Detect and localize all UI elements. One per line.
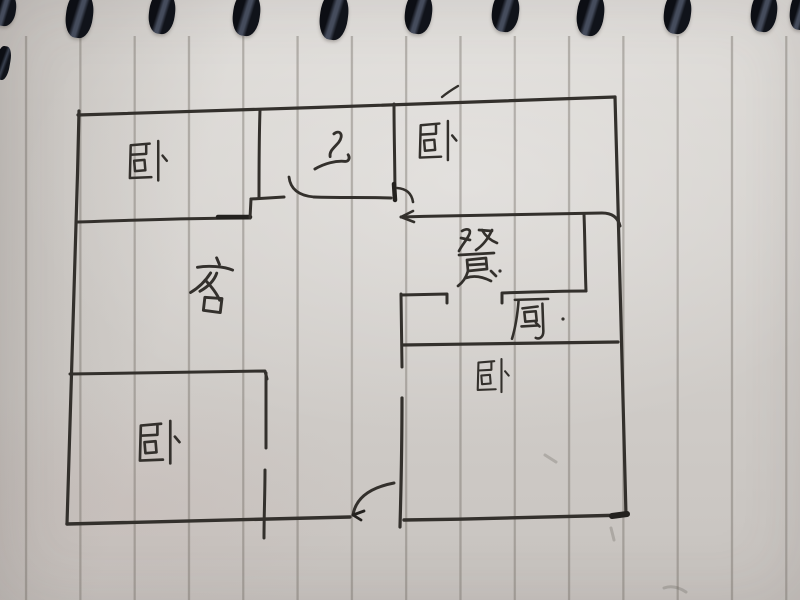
bedroom2-door-arc: [397, 188, 413, 202]
entry-door-arc: [353, 483, 394, 515]
wall-jog: [250, 199, 251, 218]
wall-outer-bottom-right: [404, 515, 627, 520]
wall-living-bedroom4: [70, 371, 267, 379]
entry-arrow-lower: [353, 515, 361, 520]
wall-outer-bottom-left: [67, 517, 350, 524]
wall-stub-dining-right: [584, 214, 586, 291]
wall-outer-top: [78, 97, 615, 115]
ink-dot: [561, 317, 564, 320]
wall-kitchen-bottom: [402, 342, 618, 345]
smudge-mark: [664, 587, 686, 592]
room-label-bedroom-right: [478, 359, 509, 392]
notebook-photo: 卧 卫 卧 客 餐 厨 卧 卧: [0, 0, 800, 600]
wall-outer-left: [67, 111, 79, 524]
wall-bedroom2-tick: [394, 184, 395, 200]
bathroom-door-arc: [289, 177, 314, 197]
room-labels: [130, 121, 565, 463]
smudge-mark: [611, 528, 614, 540]
ink-dot: [498, 269, 501, 272]
smudge-mark: [545, 455, 556, 462]
room-label-dining: [458, 229, 497, 286]
wall-kitchen-top-right: [502, 291, 586, 303]
ink-blob-bottom-right-corner: [612, 514, 627, 516]
wall-outer-right: [615, 97, 626, 515]
wall-bedroom4-right-lower: [264, 470, 265, 538]
wall-kitchen-top-left: [401, 294, 447, 303]
room-label-kitchen: [512, 299, 548, 339]
pen-flick-top: [442, 86, 458, 97]
room-label-bedroom-bottom-left: [140, 421, 180, 463]
room-label-bedroom-top-right: [420, 121, 457, 160]
wall-bedroom1-bathroom: [259, 110, 260, 197]
wall-bathroom-bottom-left: [251, 197, 284, 199]
wall-bedroom3-left-lower: [400, 398, 402, 527]
room-label-living-room: [188, 254, 235, 314]
walls: [67, 86, 686, 592]
floor-plan-sketch: [0, 0, 800, 600]
wall-bedroom3-left-upper: [401, 294, 402, 367]
room-label-bathroom: [315, 132, 349, 169]
room-label-bedroom-top-left: [130, 141, 167, 181]
wall-bathroom-bottom-right: [314, 197, 391, 198]
wall-dining-top: [401, 213, 620, 226]
